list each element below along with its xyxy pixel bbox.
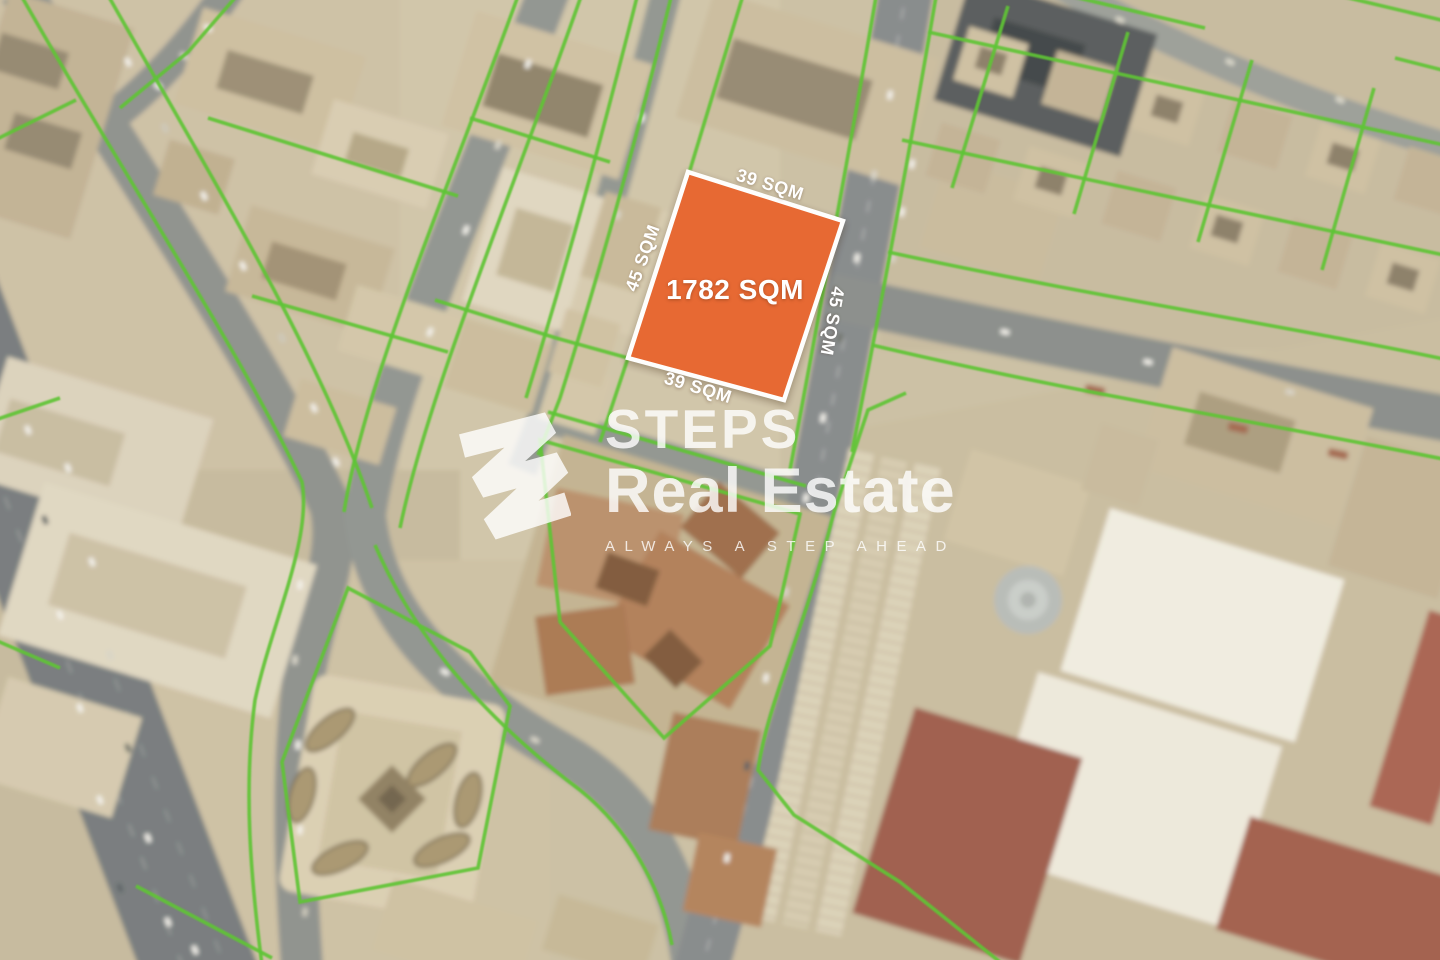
map-canvas [0,0,1440,960]
plot-area-label: 1782 SQM [666,274,804,306]
satellite-map-image: 39 SQM 45 SQM 45 SQM 39 SQM 1782 SQM STE… [0,0,1440,960]
satellite-photo-layer [0,0,1440,960]
